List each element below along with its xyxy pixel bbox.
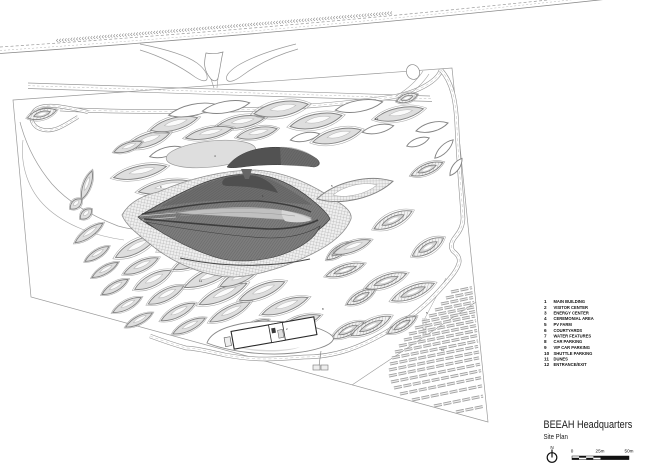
svg-text:2: 2: [544, 305, 547, 310]
svg-text:VIP CAR PARKING: VIP CAR PARKING: [554, 345, 591, 350]
svg-text:12: 12: [375, 117, 379, 121]
svg-text:WATER FEATURES: WATER FEATURES: [554, 333, 592, 338]
svg-text:N: N: [550, 445, 553, 450]
svg-text:VISITOR CENTER: VISITOR CENTER: [554, 305, 589, 310]
svg-text:11: 11: [199, 279, 202, 283]
svg-text:COURTYARDS: COURTYARDS: [554, 328, 583, 333]
svg-text:BEEAH Headquarters: BEEAH Headquarters: [544, 419, 633, 431]
svg-text:4: 4: [544, 316, 547, 321]
svg-text:6: 6: [544, 328, 547, 333]
svg-text:0: 0: [571, 449, 574, 454]
svg-text:ENERGY CENTER: ENERGY CENTER: [554, 310, 590, 315]
svg-text:10: 10: [441, 348, 445, 352]
svg-text:9: 9: [544, 345, 547, 350]
svg-text:1: 1: [544, 299, 547, 304]
svg-text:MAIN BUILDING: MAIN BUILDING: [554, 299, 586, 304]
svg-text:ENTRANCE/EXIT: ENTRANCE/EXIT: [554, 362, 587, 367]
svg-text:5: 5: [544, 322, 547, 327]
svg-text:50m: 50m: [625, 449, 634, 454]
svg-text:25m: 25m: [596, 449, 605, 454]
svg-text:10: 10: [544, 351, 550, 356]
svg-text:PV FARM: PV FARM: [554, 322, 573, 327]
svg-text:12: 12: [544, 362, 550, 367]
svg-text:DUNES: DUNES: [554, 356, 568, 361]
svg-text:Site Plan: Site Plan: [544, 433, 569, 440]
svg-text:11: 11: [544, 357, 549, 362]
svg-text:3: 3: [544, 311, 547, 316]
svg-text:SHUTTLE PARKING: SHUTTLE PARKING: [554, 351, 593, 356]
svg-text:CAR PARKING: CAR PARKING: [554, 339, 583, 344]
svg-text:7: 7: [544, 334, 547, 339]
svg-text:8: 8: [544, 339, 547, 344]
svg-text:CEREMONIAL AREA: CEREMONIAL AREA: [554, 316, 595, 321]
